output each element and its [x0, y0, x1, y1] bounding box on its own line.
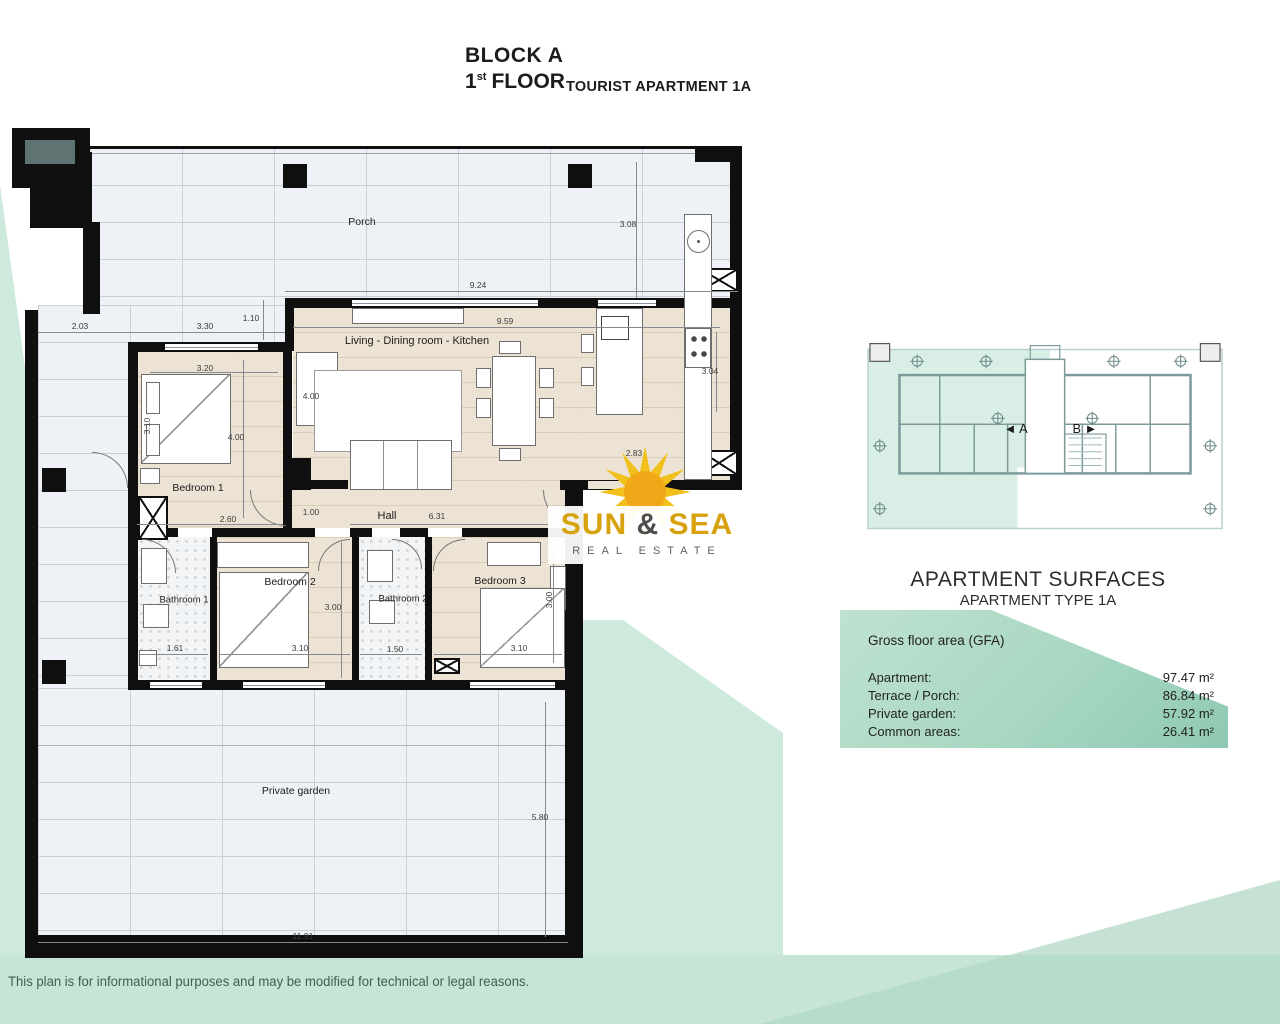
surface-label: Private garden:: [868, 706, 956, 721]
wall: [352, 537, 359, 680]
dim-line: [360, 654, 422, 655]
room-label: Private garden: [262, 785, 330, 797]
bg-accent-corner: [760, 880, 1280, 1024]
pillow: [146, 382, 160, 414]
surface-label: Apartment:: [868, 670, 932, 685]
surface-row: Apartment:97.47 m²: [868, 670, 1214, 685]
window: [598, 298, 656, 308]
dimension-label: 9.59: [497, 316, 514, 326]
logo-ampersand: &: [636, 508, 659, 541]
shaft: [434, 658, 460, 674]
wall: [128, 342, 138, 688]
dim-line: [220, 654, 350, 655]
column: [283, 164, 307, 188]
window: [165, 342, 258, 352]
wall: [350, 528, 372, 537]
dim-line: [636, 162, 637, 298]
dimension-label: 3.10: [142, 418, 152, 435]
dimension-label: 1.10: [243, 313, 260, 323]
dimension-label: 6.31: [429, 511, 446, 521]
chair: [539, 398, 554, 418]
room-label: Hall: [378, 510, 397, 522]
overview-drawing: ◄ A B ►: [848, 320, 1242, 556]
surface-value: 86.84 m²: [1163, 688, 1214, 703]
washbasin: [367, 550, 393, 582]
island-appliance: [601, 316, 629, 340]
column-inset: [25, 140, 75, 164]
chair: [539, 368, 554, 388]
logo-word-sea: SEA: [669, 508, 734, 541]
dimension-label: 3.10: [292, 643, 309, 653]
dimension-label: 3.10: [511, 643, 528, 653]
surface-value: 57.92 m²: [1163, 706, 1214, 721]
dimension-label: 9.24: [470, 280, 487, 290]
column: [42, 660, 66, 684]
dimension-label: 5.80: [532, 812, 549, 822]
washbasin: [141, 548, 167, 584]
column: [568, 164, 592, 188]
surface-row: Common areas:26.41 m²: [868, 724, 1214, 739]
logo-wordmark: SUN & SEA: [548, 508, 746, 542]
dimension-label: 3.00: [544, 592, 554, 609]
chair: [476, 368, 491, 388]
wall: [210, 537, 217, 680]
terrace-floor: [38, 688, 568, 745]
wall: [730, 146, 742, 490]
surface-label: Terrace / Porch:: [868, 688, 960, 703]
porch-edge-line: [90, 153, 740, 154]
dimension-label: 1.61: [167, 643, 184, 653]
logo-word-sun: SUN: [561, 508, 627, 541]
dimension-label: 4.00: [228, 432, 245, 442]
surface-label: Common areas:: [868, 724, 960, 739]
dim-line: [38, 942, 568, 943]
column: [42, 468, 66, 492]
surface-value: 26.41 m²: [1163, 724, 1214, 739]
dimension-label: 11.91: [293, 931, 314, 941]
fixture: [139, 650, 157, 666]
wardrobe: [217, 542, 309, 568]
unit-b-label: B ►: [1073, 421, 1098, 436]
unit-a-label: ◄ A: [1004, 421, 1028, 436]
overview-plan: ◄ A B ►: [848, 320, 1242, 556]
garden-edge-line: [38, 745, 568, 746]
surfaces-subtitle: APARTMENT TYPE 1A: [840, 592, 1236, 609]
wall: [25, 310, 38, 958]
chair: [476, 398, 491, 418]
porch-edge: [90, 146, 742, 149]
surface-value: 97.47 m²: [1163, 670, 1214, 685]
surfaces-title: APARTMENT SURFACES: [840, 568, 1236, 592]
dimension-label: 3.00: [325, 602, 342, 612]
dimension-label: 2.03: [72, 321, 89, 331]
dimension-label: 2.60: [220, 514, 237, 524]
dimension-label: 4.00: [303, 391, 320, 401]
overview-highlight-a: [868, 350, 1050, 529]
porch-floor: [90, 148, 740, 305]
toilet: [143, 604, 169, 628]
room-label: Bedroom 3: [474, 575, 525, 587]
stool: [581, 367, 594, 386]
chair: [499, 341, 521, 354]
stove: [685, 328, 711, 368]
dim-line: [140, 654, 208, 655]
dimension-label: 3.04: [702, 366, 719, 376]
dim-line: [285, 291, 738, 292]
shaft: [138, 496, 168, 540]
dim-line: [137, 524, 283, 525]
nightstand: [140, 468, 160, 484]
room-label: Bathroom 1: [159, 595, 208, 606]
sofa: [350, 440, 452, 490]
room-label: Porch: [348, 216, 375, 228]
wall: [298, 480, 348, 489]
surface-row: Terrace / Porch:86.84 m²: [868, 688, 1214, 703]
dim-line: [38, 332, 285, 333]
room-label: Living - Dining room - Kitchen: [345, 335, 489, 347]
room-label: Bedroom 1: [172, 482, 223, 494]
logo-tagline: REAL ESTATE: [548, 545, 746, 557]
dimension-label: 3.20: [197, 363, 214, 373]
wardrobe: [487, 542, 541, 566]
chair: [499, 448, 521, 461]
wall: [425, 537, 432, 680]
room-label: Bathroom 2: [378, 594, 427, 605]
terrace-floor: [38, 305, 140, 688]
dim-line: [434, 654, 562, 655]
surface-row: Private garden:57.92 m²: [868, 706, 1214, 721]
dimension-label: 3.08: [620, 219, 637, 229]
dimension-label: 1.00: [303, 507, 320, 517]
garden-floor: [38, 745, 568, 935]
logo: SUN & SEA REAL ESTATE: [545, 448, 745, 568]
dim-line: [350, 524, 568, 525]
dim-line: [263, 300, 264, 340]
disclaimer-text: This plan is for informational purposes …: [8, 974, 529, 989]
window: [150, 680, 202, 690]
dimension-label: 3.30: [197, 321, 214, 331]
dining-table: [492, 356, 536, 446]
window: [243, 680, 325, 690]
dimension-label: 1.50: [387, 644, 404, 654]
kitchen-sink: [687, 230, 710, 253]
wall: [400, 528, 428, 537]
window: [470, 680, 555, 690]
dim-line: [293, 327, 720, 328]
page: BLOCK A 1stFLOOR TOURIST APARTMENT 1A: [0, 0, 1280, 1024]
stool: [581, 334, 594, 353]
wall: [212, 528, 315, 537]
sideboard: [352, 308, 464, 324]
dim-line: [150, 372, 278, 373]
room-label: Bedroom 2: [264, 576, 315, 588]
wall: [83, 222, 100, 314]
window: [352, 298, 538, 308]
gfa-label: Gross floor area (GFA): [868, 633, 1005, 648]
